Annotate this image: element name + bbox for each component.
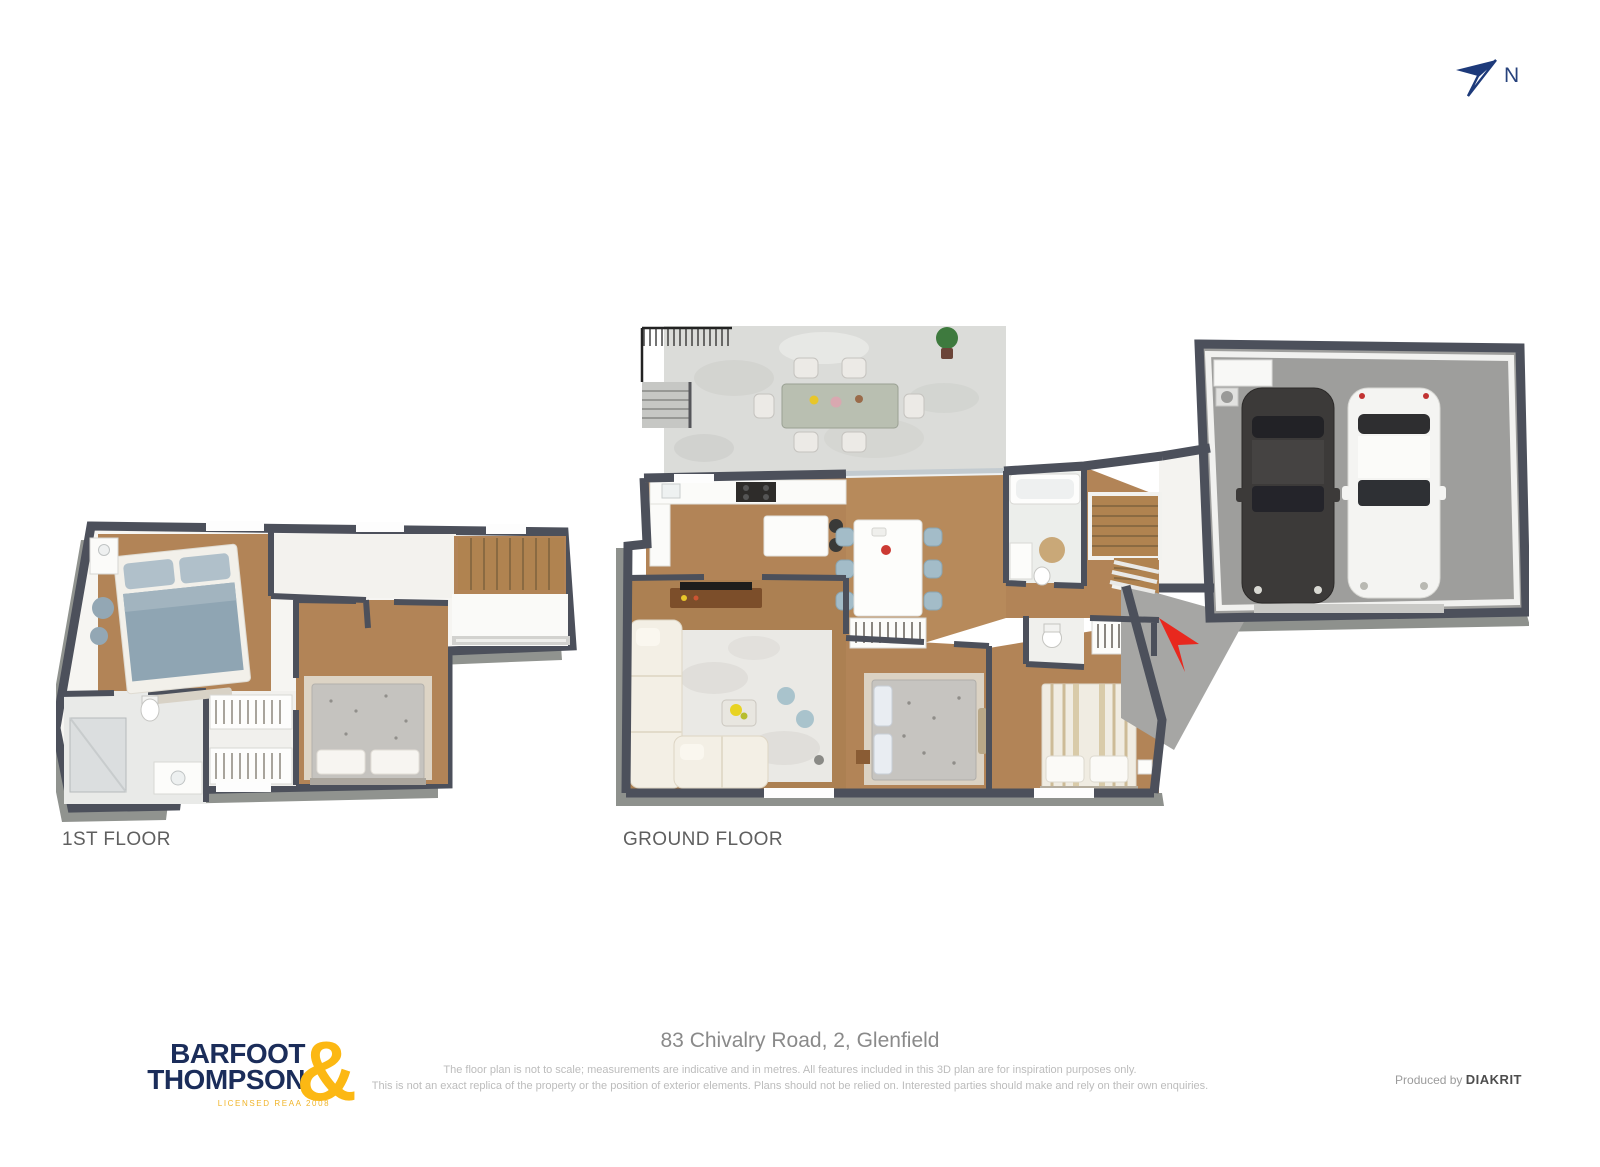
garage — [1199, 344, 1526, 618]
stairs-first-floor — [458, 538, 564, 590]
compass-n-label: N — [1504, 64, 1519, 88]
bathtub — [1010, 474, 1080, 504]
north-arrow-icon — [1452, 52, 1532, 108]
floor-lamp — [814, 755, 824, 765]
disclaimer: The floor plan is not to scale; measurem… — [0, 1062, 1580, 1094]
dining-set — [836, 520, 942, 616]
deck-stairs — [642, 382, 690, 428]
produced-by: Produced by DIAKRIT — [1395, 1072, 1522, 1087]
master-vanity — [90, 538, 118, 574]
property-address: 83 Chivalry Road, 2, Glenfield — [0, 1029, 1600, 1053]
ground-floor-label: GROUND FLOOR — [623, 829, 783, 851]
first-floor-plan — [56, 496, 591, 841]
producer-name: DIAKRIT — [1466, 1072, 1522, 1087]
disclaimer-line-2: This is not an exact replica of the prop… — [0, 1078, 1580, 1094]
tv-unit — [670, 582, 762, 608]
pouf — [777, 687, 795, 705]
coffee-table — [722, 700, 756, 726]
floorplan-page: N — [0, 0, 1600, 1167]
master-bed — [113, 544, 252, 707]
wc — [1043, 624, 1062, 648]
second-bedroom-bed — [304, 676, 432, 785]
first-floor-label: 1ST FLOOR — [62, 829, 171, 851]
car-white — [1342, 388, 1446, 598]
north-compass: N — [1452, 52, 1532, 108]
cooktop — [736, 482, 776, 502]
ground-floor-plan — [614, 288, 1529, 828]
garage-door — [1254, 604, 1444, 613]
disclaimer-line-1: The floor plan is not to scale; measurem… — [0, 1062, 1580, 1078]
produced-by-text: Produced by — [1395, 1073, 1462, 1087]
logo-license-text: LICENSED REAA 2008 — [199, 1099, 349, 1108]
car-dark — [1236, 388, 1340, 603]
balcony-rail — [452, 636, 570, 645]
pouf — [796, 710, 814, 728]
